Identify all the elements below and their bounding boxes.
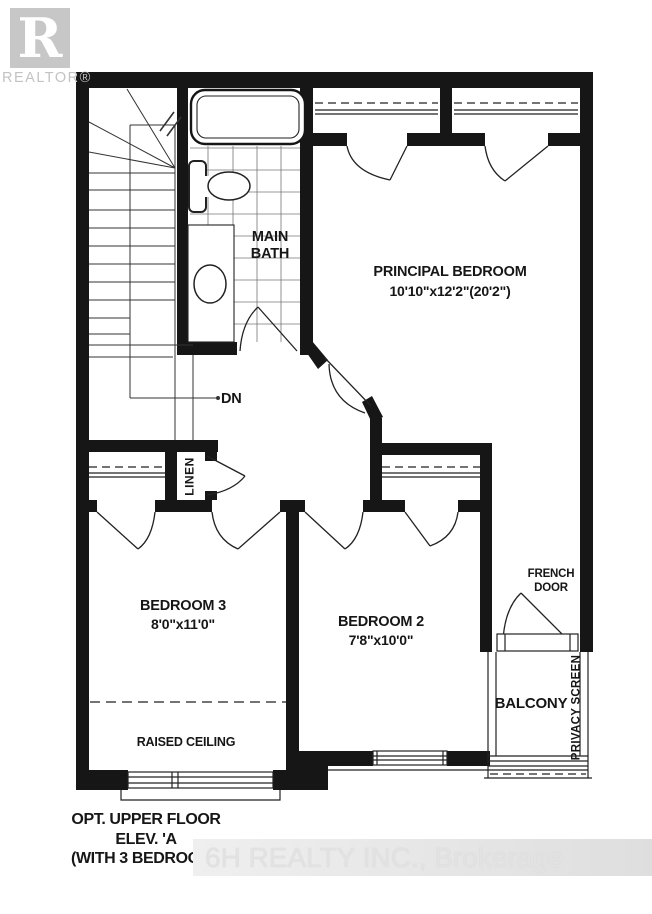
main-bath-label: MAIN BATH [244,229,296,263]
french-door-label: FRENCH DOOR [516,567,586,595]
principal-bedroom-dimensions: 10'10"x12'2"(20'2") [340,283,560,299]
plan-title-line1: OPT. UPPER FLOOR [40,810,252,830]
exterior-walls [76,72,593,790]
vanity-sink [188,225,234,342]
realtor-logo-text: REALTOR® [2,70,88,86]
raised-ceiling-label: RAISED CEILING [106,735,266,749]
realtor-logo: R [10,8,70,68]
balcony-label: BALCONY [481,695,581,712]
brokerage-watermark: 6H REALTY INC., Brokerage [193,839,652,876]
floor-plan-drawing [0,0,652,914]
bathtub [191,90,305,144]
bedroom3-dimensions: 8'0"x11'0" [93,616,273,632]
doors-and-swings [97,146,568,640]
principal-bedroom-label: PRINCIPAL BEDROOM [340,264,560,281]
bedroom3-label: BEDROOM 3 [93,598,273,615]
bedroom2-dimensions: 7'8"x10'0" [291,632,471,648]
bedroom2-label: BEDROOM 2 [291,614,471,631]
toilet [189,161,250,212]
stairs-down-label: DN [221,391,242,408]
floor-plan-page: MAIN BATH PRINCIPAL BEDROOM 10'10"x12'2"… [0,0,652,914]
linen-closet-label: LINEN [184,453,197,501]
privacy-screen-label: PRIVACY SCREEN [571,653,584,763]
